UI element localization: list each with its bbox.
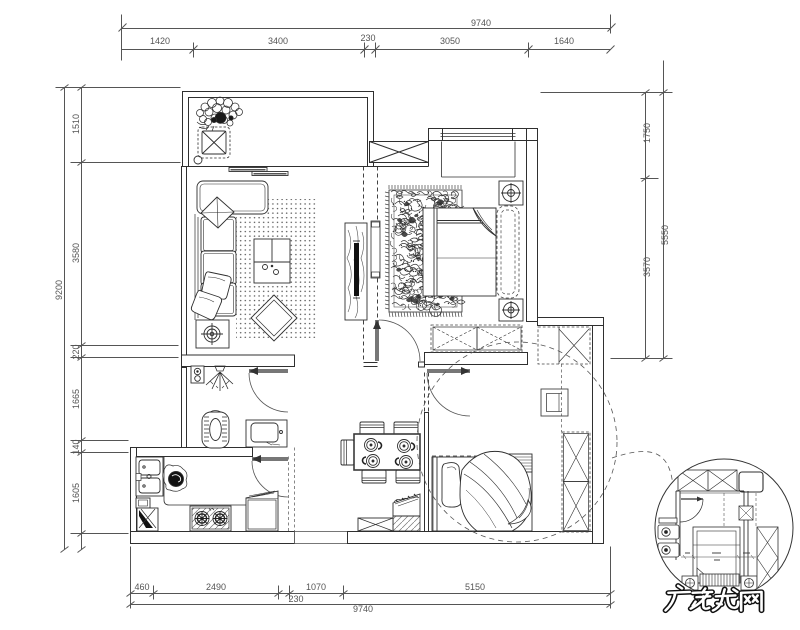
svg-text:1665: 1665: [71, 389, 81, 409]
svg-text:2490: 2490: [206, 582, 226, 592]
svg-text:230: 230: [288, 594, 303, 604]
svg-text:140: 140: [71, 439, 81, 454]
svg-text:1605: 1605: [71, 483, 81, 503]
svg-text:5150: 5150: [465, 582, 485, 592]
svg-text:9200: 9200: [54, 280, 64, 300]
svg-text:230: 230: [360, 33, 375, 43]
svg-text:1510: 1510: [71, 114, 81, 134]
svg-text:1420: 1420: [150, 36, 170, 46]
svg-text:9740: 9740: [471, 18, 491, 28]
svg-text:3050: 3050: [440, 36, 460, 46]
svg-text:220: 220: [71, 344, 81, 359]
svg-text:1070: 1070: [306, 582, 326, 592]
svg-text:5550: 5550: [660, 225, 670, 245]
svg-text:9740: 9740: [353, 604, 373, 614]
svg-text:1640: 1640: [554, 36, 574, 46]
svg-text:3570: 3570: [642, 257, 652, 277]
svg-text:3580: 3580: [71, 243, 81, 263]
svg-text:1750: 1750: [642, 123, 652, 143]
svg-text:3400: 3400: [268, 36, 288, 46]
svg-text:460: 460: [134, 582, 149, 592]
